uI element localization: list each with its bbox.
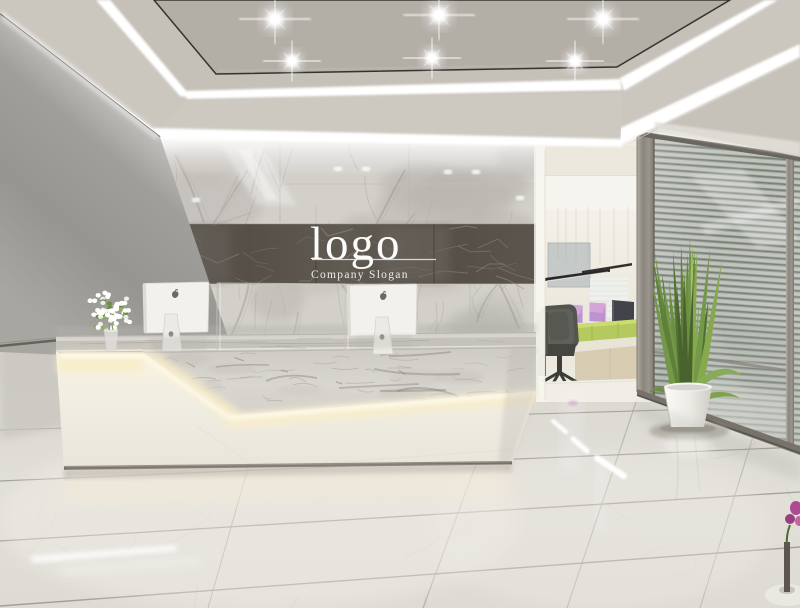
svg-text:Company Slogan: Company Slogan: [311, 269, 409, 281]
svg-text:logo: logo: [310, 218, 402, 270]
